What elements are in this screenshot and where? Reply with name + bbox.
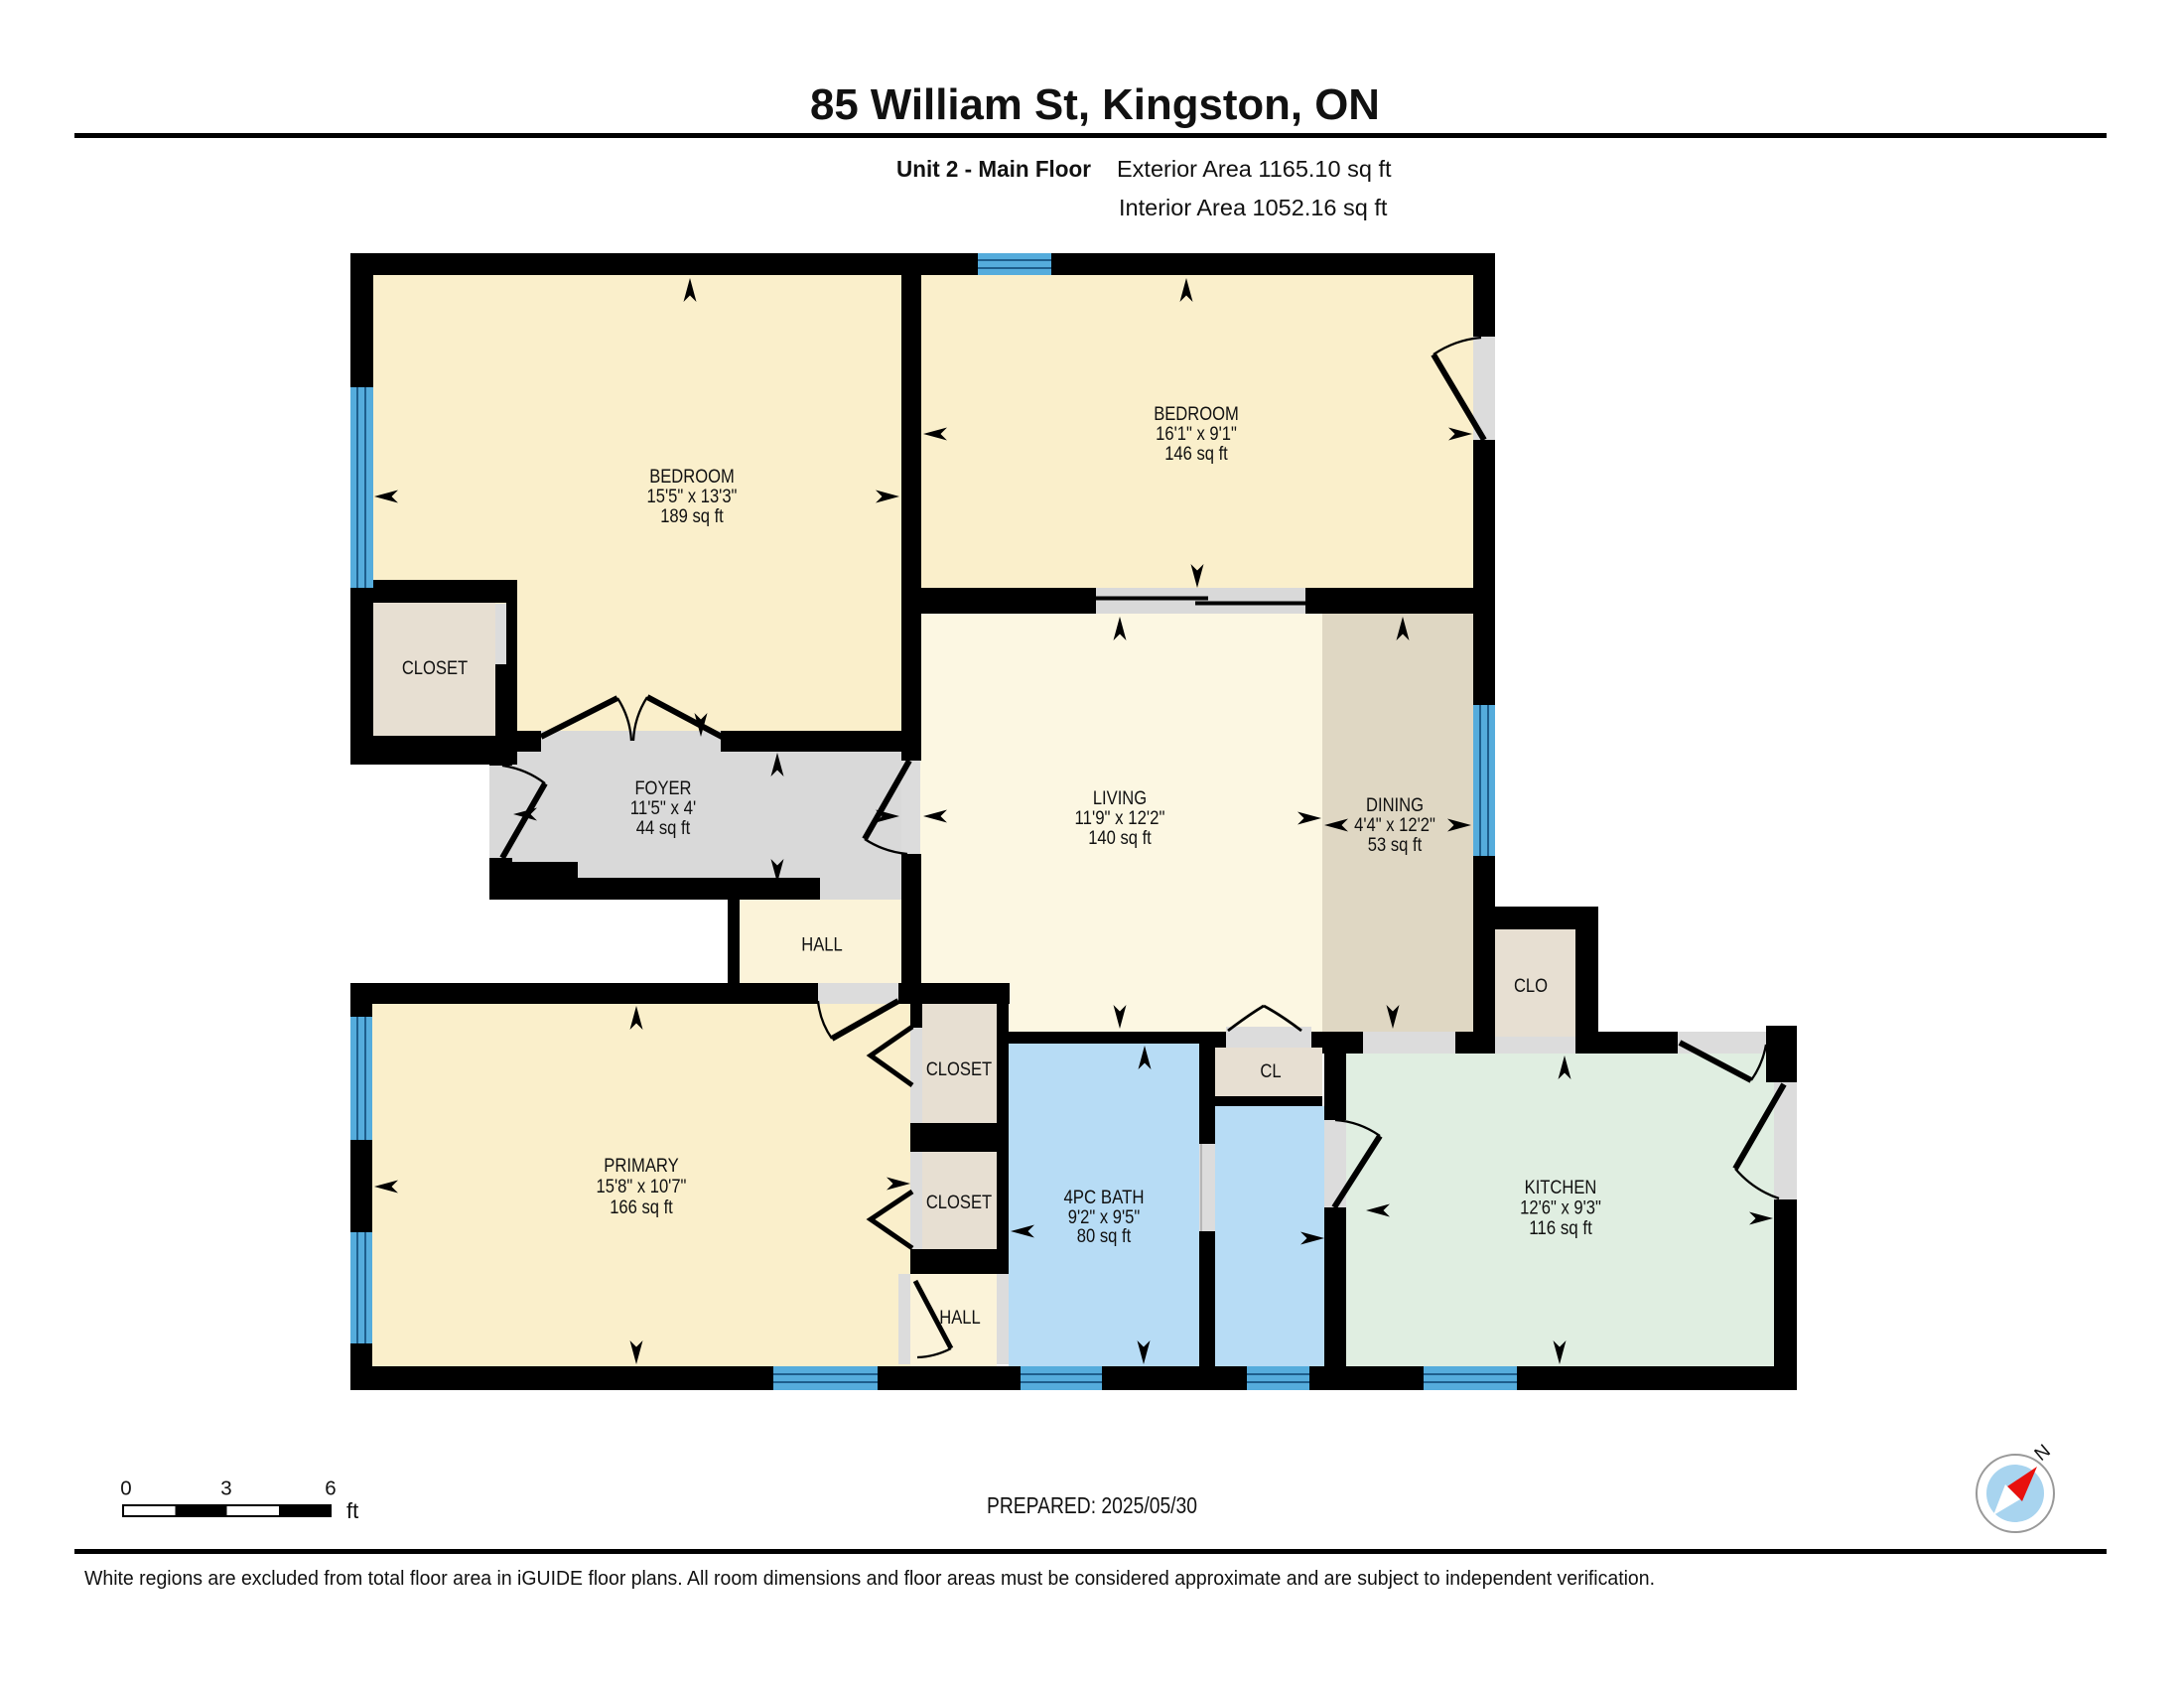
svg-text:44 sq ft: 44 sq ft bbox=[636, 817, 691, 839]
svg-text:PREPARED: 2025/05/30: PREPARED: 2025/05/30 bbox=[987, 1492, 1197, 1518]
svg-text:CLOSET: CLOSET bbox=[926, 1192, 992, 1213]
svg-text:15'5" x 13'3": 15'5" x 13'3" bbox=[647, 486, 738, 507]
svg-text:53 sq ft: 53 sq ft bbox=[1368, 834, 1423, 856]
svg-text:HALL: HALL bbox=[801, 934, 843, 956]
svg-text:15'8" x 10'7": 15'8" x 10'7" bbox=[597, 1176, 687, 1197]
svg-text:146 sq ft: 146 sq ft bbox=[1164, 443, 1228, 465]
svg-text:0: 0 bbox=[120, 1477, 131, 1500]
svg-text:4'4" x 12'2": 4'4" x 12'2" bbox=[1354, 814, 1435, 836]
svg-text:189 sq ft: 189 sq ft bbox=[660, 505, 724, 527]
svg-text:11'9" x 12'2": 11'9" x 12'2" bbox=[1075, 807, 1165, 829]
svg-text:KITCHEN: KITCHEN bbox=[1525, 1177, 1597, 1198]
svg-text:White regions are excluded fro: White regions are excluded from total fl… bbox=[84, 1568, 1655, 1590]
svg-text:140 sq ft: 140 sq ft bbox=[1088, 827, 1152, 849]
svg-text:166 sq ft: 166 sq ft bbox=[610, 1196, 673, 1218]
svg-text:4PC BATH: 4PC BATH bbox=[1063, 1187, 1144, 1208]
svg-text:3: 3 bbox=[220, 1477, 231, 1500]
svg-text:HALL: HALL bbox=[939, 1307, 981, 1329]
svg-text:LIVING: LIVING bbox=[1093, 787, 1147, 809]
svg-text:Interior Area 1052.16 sq ft: Interior Area 1052.16 sq ft bbox=[1119, 195, 1388, 220]
svg-text:80 sq ft: 80 sq ft bbox=[1077, 1225, 1132, 1247]
svg-text:BEDROOM: BEDROOM bbox=[649, 466, 735, 488]
svg-text:ft: ft bbox=[346, 1498, 358, 1523]
svg-text:116 sq ft: 116 sq ft bbox=[1529, 1217, 1592, 1239]
svg-text:CLOSET: CLOSET bbox=[926, 1058, 992, 1080]
svg-text:Unit 2 - Main Floor: Unit 2 - Main Floor bbox=[896, 156, 1091, 182]
svg-text:11'5" x 4': 11'5" x 4' bbox=[630, 797, 697, 819]
svg-text:CLOSET: CLOSET bbox=[402, 657, 468, 679]
svg-text:FOYER: FOYER bbox=[634, 777, 691, 799]
svg-text:85 William St, Kingston, ON: 85 William St, Kingston, ON bbox=[810, 80, 1380, 129]
svg-text:CLO: CLO bbox=[1514, 975, 1548, 997]
svg-text:12'6" x 9'3": 12'6" x 9'3" bbox=[1520, 1197, 1601, 1219]
svg-text:BEDROOM: BEDROOM bbox=[1154, 403, 1239, 425]
svg-text:Exterior Area 1165.10 sq ft: Exterior Area 1165.10 sq ft bbox=[1117, 156, 1392, 182]
svg-text:DINING: DINING bbox=[1366, 794, 1424, 816]
svg-text:CL: CL bbox=[1260, 1060, 1281, 1082]
svg-text:PRIMARY: PRIMARY bbox=[604, 1155, 679, 1177]
svg-text:16'1" x 9'1": 16'1" x 9'1" bbox=[1156, 423, 1237, 445]
svg-text:6: 6 bbox=[325, 1477, 336, 1500]
